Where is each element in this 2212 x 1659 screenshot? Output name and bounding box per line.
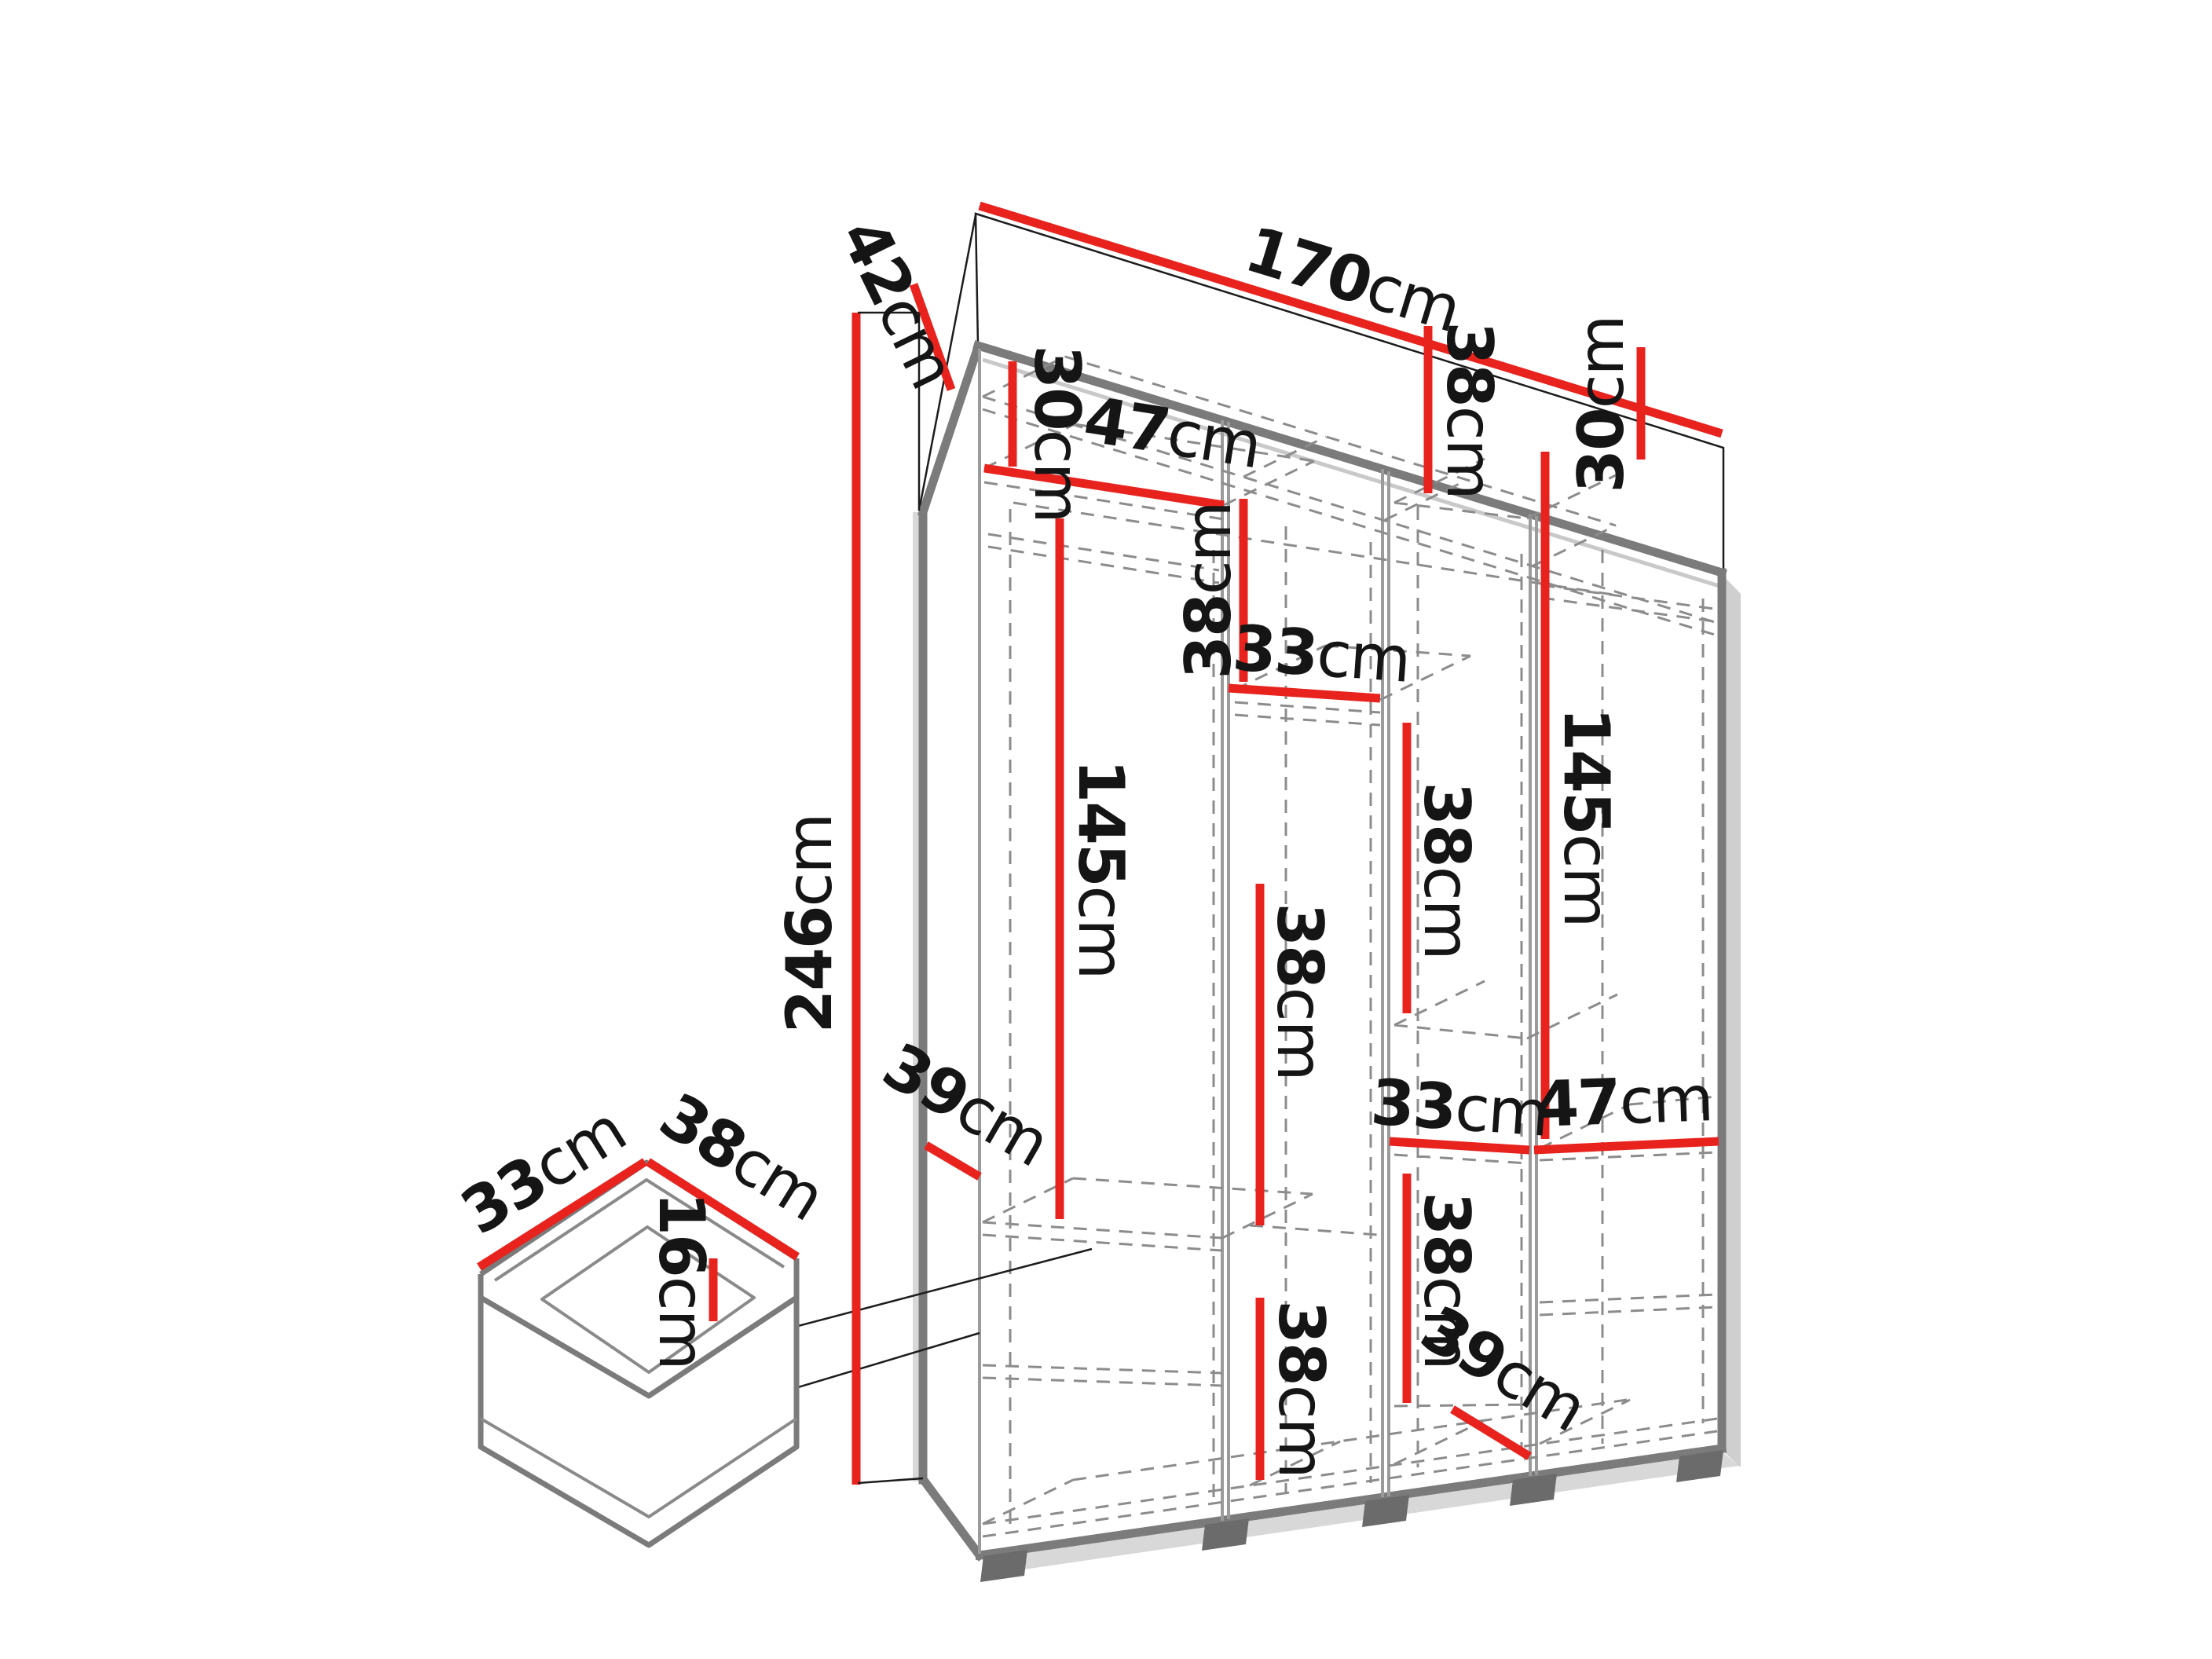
wardrobe-dimension-diagram: 170cm 42cm 246cm 30cm 47cm 145cm 38cm 33… <box>0 0 2212 1659</box>
divider-3 <box>1530 515 1536 1476</box>
drawer-callout-lines <box>798 1249 1092 1387</box>
label-col2-mid-38: 38cm <box>1263 903 1336 1079</box>
dim-line-left-depth-39 <box>926 1145 980 1177</box>
diagram-svg: 170cm 42cm 246cm 30cm 47cm 145cm 38cm 33… <box>0 0 2212 1659</box>
label-height-246: 246cm <box>773 815 846 1034</box>
dim-line-col1-shelf-47 <box>984 468 1224 505</box>
dim-line-col4-shelf-47 <box>1534 1141 1719 1150</box>
label-drawer-16: 16cm <box>645 1192 718 1368</box>
label-col2-shelf-33: 33cm <box>1230 611 1412 696</box>
left-panel-bottom-edge <box>923 1479 980 1555</box>
bottom-front-edge <box>980 1448 1722 1555</box>
drawer-callout-line-1 <box>798 1249 1092 1326</box>
label-col3-shelf-33: 33cm <box>1368 1065 1550 1150</box>
label-col2-bottom-38: 38cm <box>1265 1300 1338 1477</box>
label-left-depth-39: 39cm <box>871 1029 1061 1181</box>
drawer-callout-line-2 <box>798 1333 980 1387</box>
label-col4-top-30: 30cm <box>1565 316 1638 493</box>
label-col1-145: 145cm <box>1064 760 1137 979</box>
label-col1-shelf-47: 47cm <box>1079 383 1265 482</box>
label-col3-mid-38: 38cm <box>1410 782 1483 958</box>
bottom-shadow <box>981 1452 1739 1574</box>
label-col4-shelf-47: 47cm <box>1534 1062 1713 1141</box>
label-col4-145: 145cm <box>1550 708 1623 927</box>
label-col3-top-38: 38cm <box>1433 321 1506 498</box>
col4-interior <box>1540 550 1717 1444</box>
label-depth-42: 42cm <box>826 207 969 398</box>
label-col4-bottom-39: 39cm <box>1409 1292 1599 1446</box>
